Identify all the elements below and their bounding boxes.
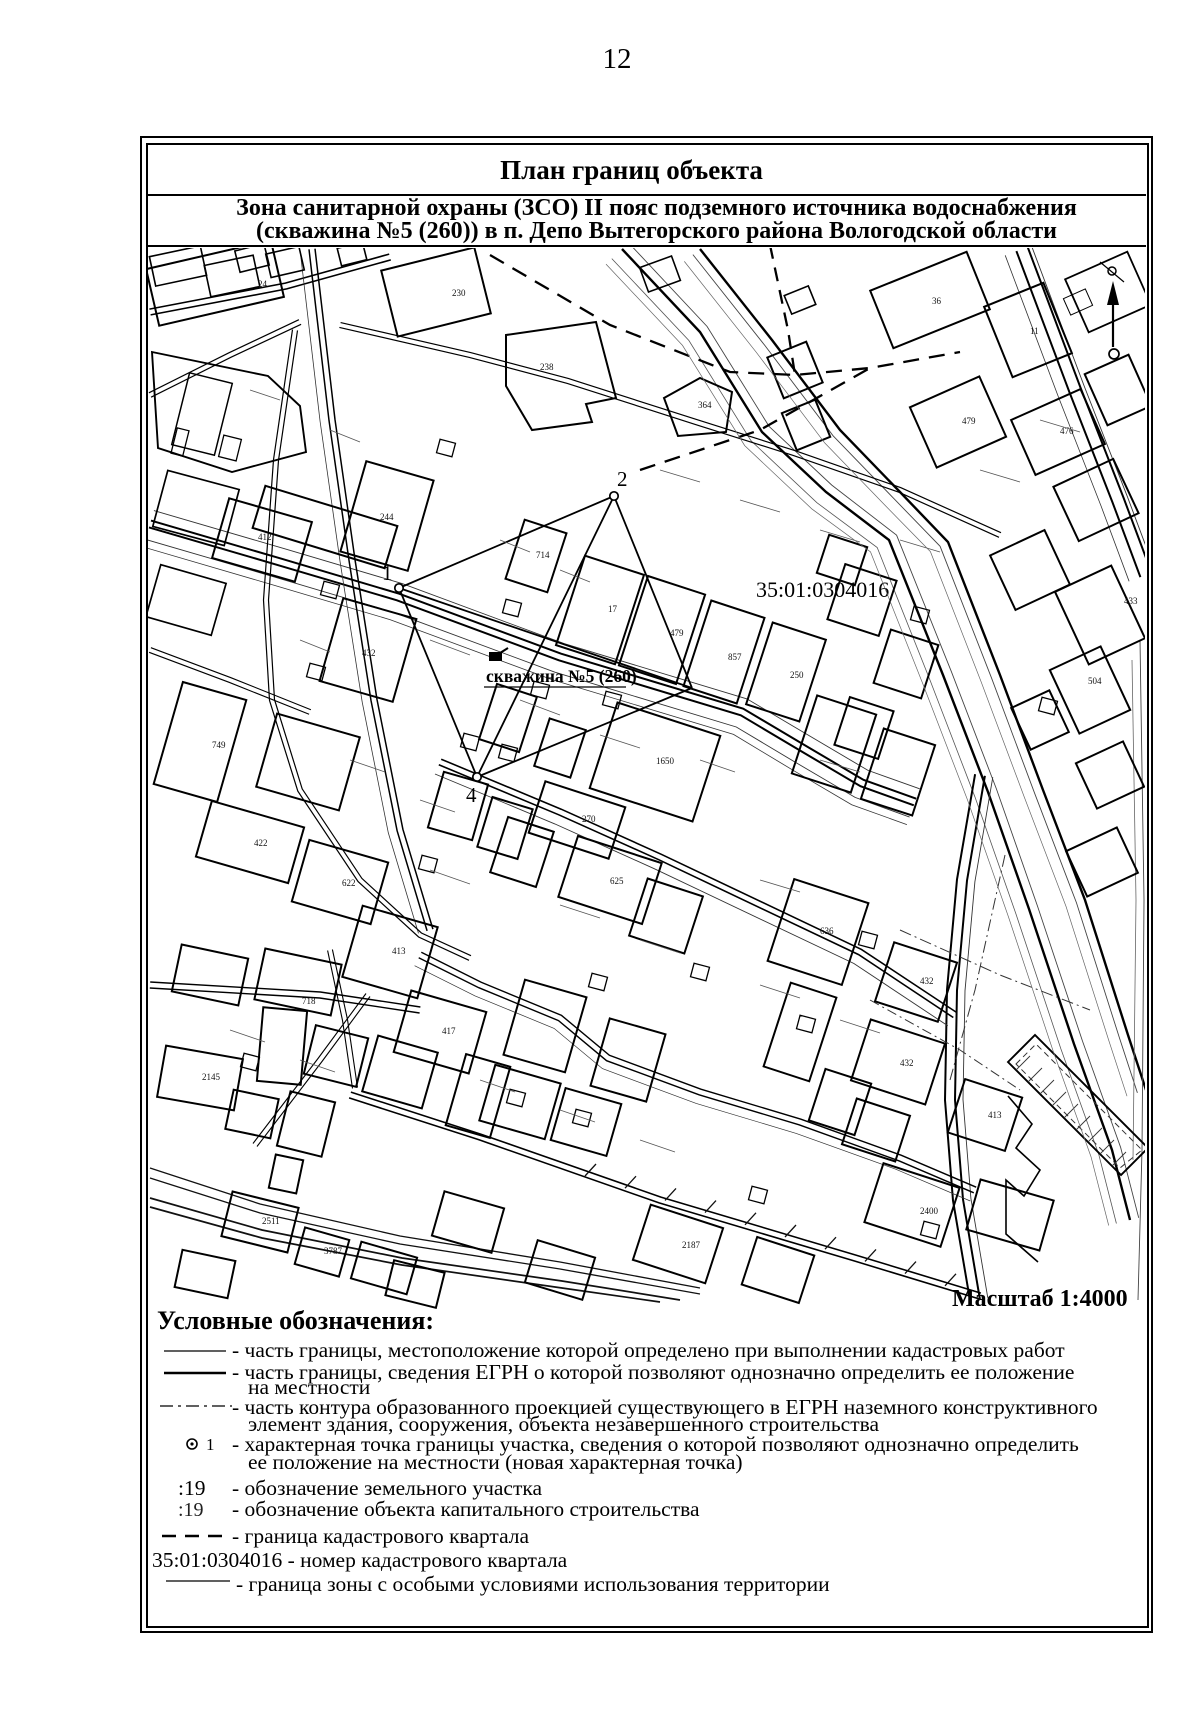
svg-text:479: 479 xyxy=(670,628,684,638)
svg-text:24: 24 xyxy=(258,279,268,289)
svg-text:364: 364 xyxy=(698,400,712,410)
svg-text:250: 250 xyxy=(790,670,804,680)
svg-text:2: 2 xyxy=(617,467,628,491)
svg-text:270: 270 xyxy=(582,814,596,824)
svg-text::19: :19 xyxy=(178,1499,204,1521)
svg-text:- обозначение объекта капиталь: - обозначение объекта капитального строи… xyxy=(232,1497,700,1521)
svg-text::19: :19 xyxy=(178,1476,205,1500)
svg-text:476: 476 xyxy=(1060,426,1074,436)
svg-text:2145: 2145 xyxy=(202,1072,221,1082)
svg-text:ее положение на местности (нов: ее положение на местности (новая характе… xyxy=(248,1450,743,1474)
svg-text:432: 432 xyxy=(920,976,934,986)
svg-text:749: 749 xyxy=(212,740,226,750)
svg-text:244: 244 xyxy=(380,512,394,522)
svg-text:35:01:0304016: 35:01:0304016 xyxy=(756,577,889,602)
svg-text:433: 433 xyxy=(1124,596,1138,606)
svg-text:36: 36 xyxy=(932,296,942,306)
svg-text:857: 857 xyxy=(728,652,742,662)
svg-text:413: 413 xyxy=(988,1110,1002,1120)
svg-text:417: 417 xyxy=(442,1026,456,1036)
svg-text:432: 432 xyxy=(900,1058,914,1068)
svg-text:35:01:0304016 - номер кадастро: 35:01:0304016 - номер кадастрового кварт… xyxy=(152,1548,568,1572)
svg-text:4: 4 xyxy=(466,783,477,807)
svg-text:2511: 2511 xyxy=(262,1216,280,1226)
svg-text:238: 238 xyxy=(540,362,554,372)
svg-text:412: 412 xyxy=(258,532,272,542)
svg-text:432: 432 xyxy=(362,648,376,658)
svg-text:- граница кадастрового квартал: - граница кадастрового квартала xyxy=(232,1524,530,1548)
svg-text:17: 17 xyxy=(608,604,618,614)
svg-text:718: 718 xyxy=(302,996,316,1006)
svg-text:скважина №5 (260): скважина №5 (260) xyxy=(486,666,637,686)
svg-text:504: 504 xyxy=(1088,676,1102,686)
svg-text:622: 622 xyxy=(342,878,356,888)
svg-text:422: 422 xyxy=(254,838,268,848)
svg-text:230: 230 xyxy=(452,288,466,298)
svg-text:636: 636 xyxy=(820,926,834,936)
svg-text:479: 479 xyxy=(962,416,976,426)
svg-text:1650: 1650 xyxy=(656,756,675,766)
svg-text:- граница зоны с особыми услов: - граница зоны с особыми условиями испол… xyxy=(236,1572,830,1596)
svg-text:714: 714 xyxy=(536,550,550,560)
svg-text:625: 625 xyxy=(610,876,624,886)
svg-text:413: 413 xyxy=(392,946,406,956)
svg-text:2187: 2187 xyxy=(682,1240,701,1250)
svg-text:- часть границы, местоположени: - часть границы, местоположение которой … xyxy=(232,1338,1065,1362)
svg-text:11: 11 xyxy=(1030,326,1039,336)
svg-text:1: 1 xyxy=(206,1435,215,1454)
svg-text:3787: 3787 xyxy=(324,1246,343,1256)
svg-text:2400: 2400 xyxy=(920,1206,939,1216)
